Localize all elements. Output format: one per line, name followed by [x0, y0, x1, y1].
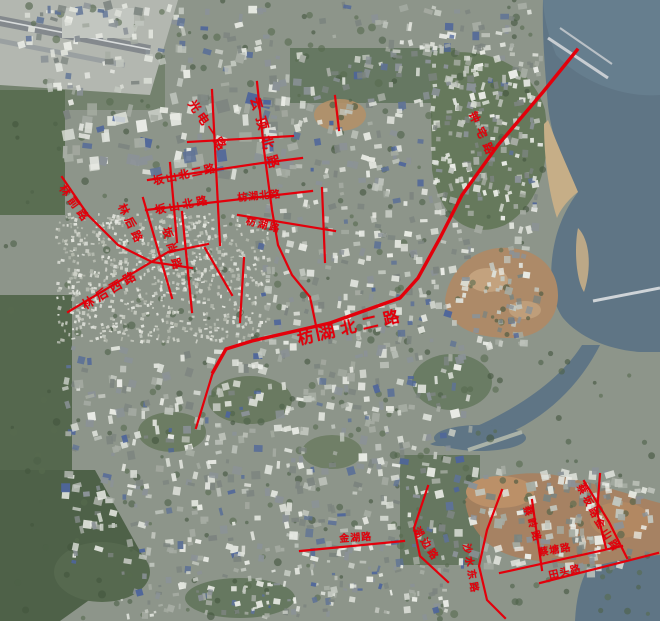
road-line	[540, 553, 658, 583]
road-line	[213, 50, 577, 372]
road-line	[205, 248, 232, 295]
road-line	[188, 136, 293, 142]
road-line	[300, 541, 404, 551]
road-line	[240, 258, 244, 322]
road-line	[146, 191, 312, 210]
road-line	[310, 297, 319, 340]
road-line	[335, 96, 339, 130]
roads-overlay	[0, 0, 660, 621]
road-line	[479, 490, 505, 618]
satellite-map[interactable]: 光电一路云顶北路坂山北二路坂山北路林前路林后路坂尚路林后西路枋湖北路枋湖路枋湖北…	[0, 0, 660, 621]
road-line	[212, 90, 220, 245]
road-line	[196, 372, 213, 428]
road-line	[322, 188, 325, 262]
road-line	[238, 215, 335, 231]
road-line	[143, 198, 172, 298]
road-line	[500, 546, 622, 573]
road-line	[532, 500, 542, 570]
road-line	[257, 82, 310, 297]
road-line	[182, 212, 192, 312]
road-line	[414, 486, 448, 582]
